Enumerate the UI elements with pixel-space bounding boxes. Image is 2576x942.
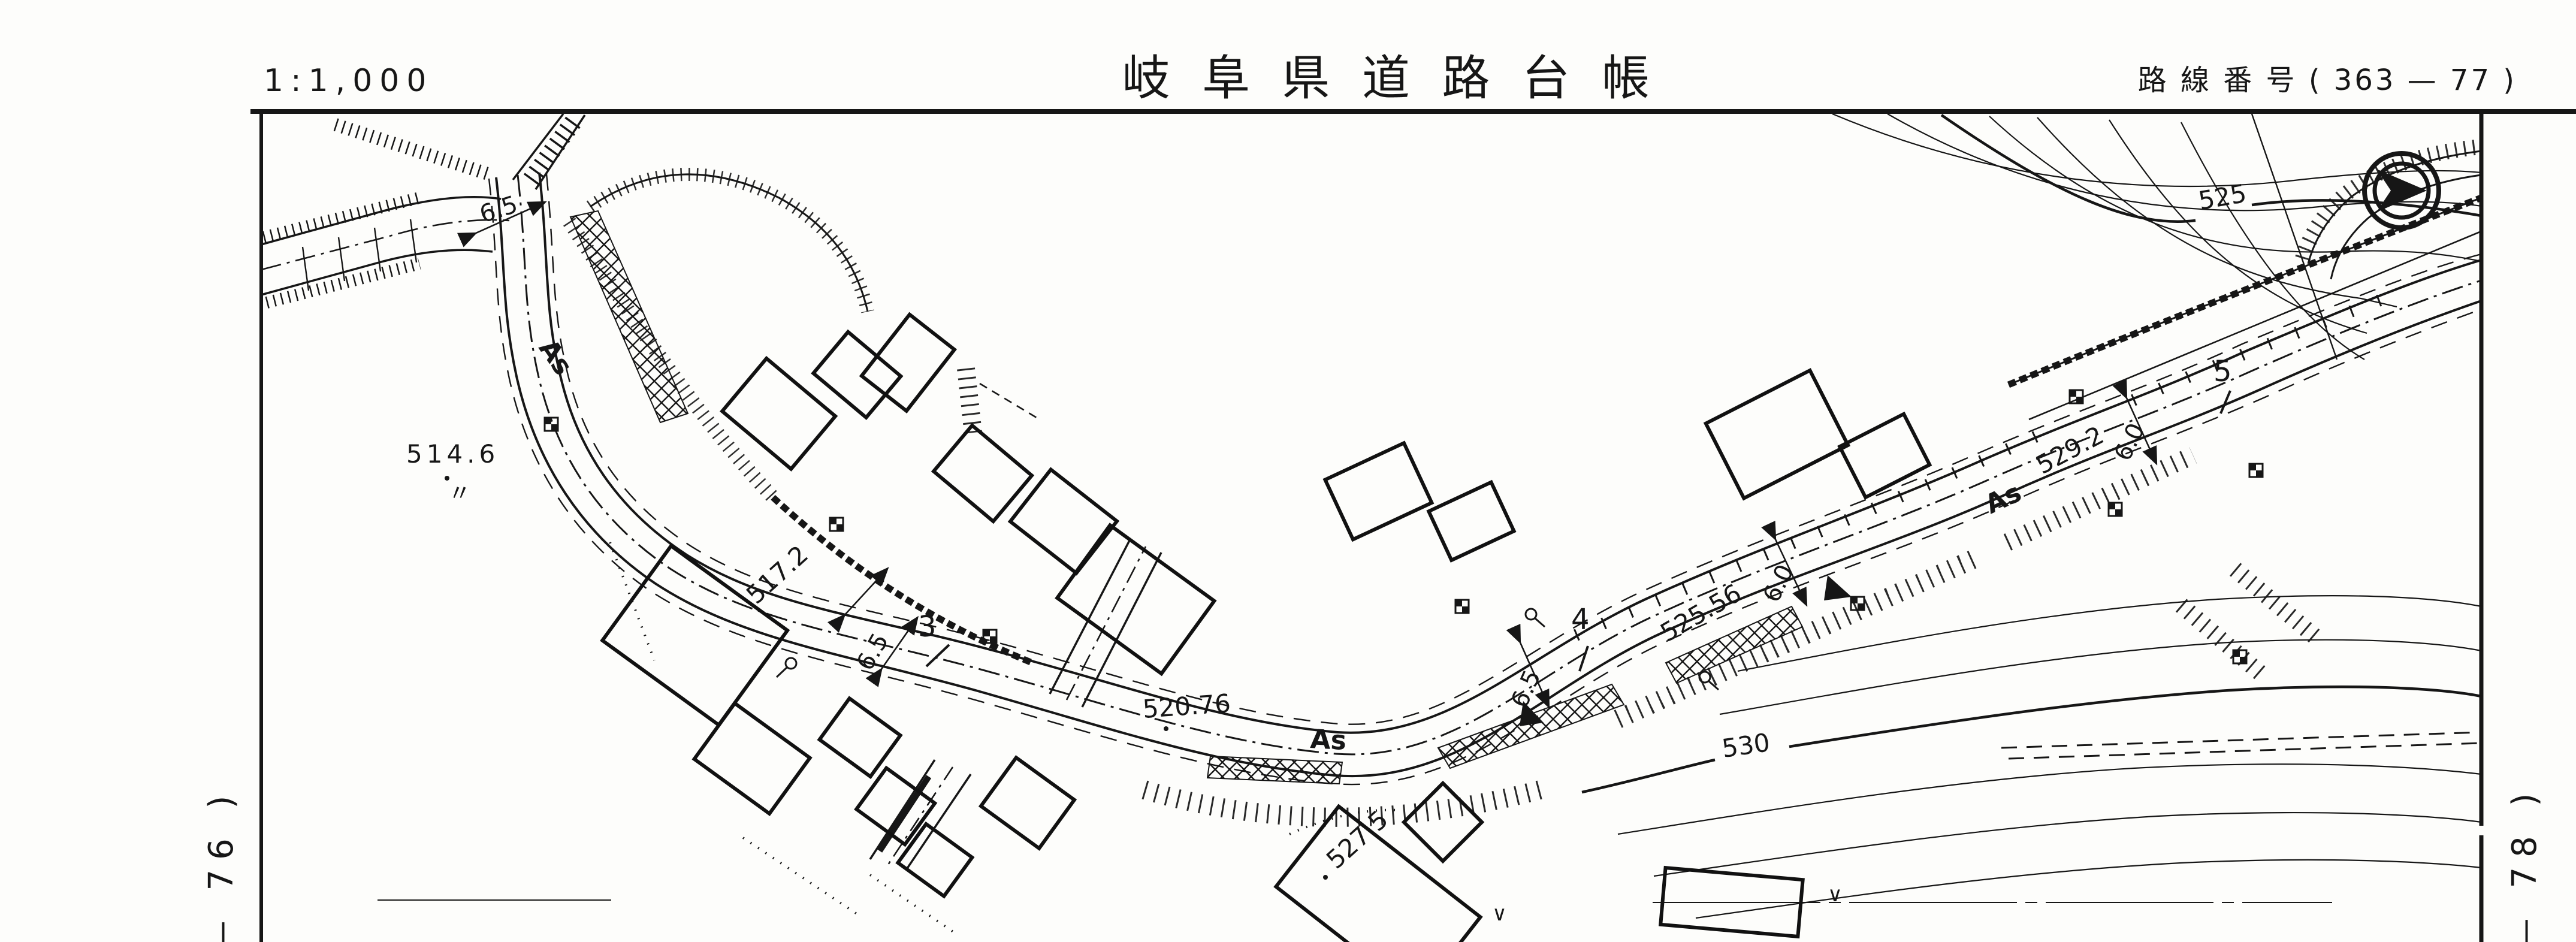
benchmark-icon <box>545 418 558 431</box>
spot-elevation-label: 514.6 <box>406 439 499 469</box>
left-approach-road <box>261 125 509 303</box>
lower-branch-road <box>870 760 971 870</box>
sheet-ref-left: — 76 ) <box>202 786 241 942</box>
terrace-lines-lower <box>378 596 2481 918</box>
station-number: 3 <box>918 610 937 644</box>
pavement-label: As <box>1980 477 2026 520</box>
station-number: 4 <box>1571 603 1590 636</box>
road-width-label: 6.0 <box>1758 560 1799 606</box>
contour-label: 530 <box>1720 727 1772 763</box>
benchmark-icon <box>2109 503 2122 516</box>
benchmark-icon <box>1851 597 1864 610</box>
pavement-label: As <box>533 334 578 381</box>
pavement-label: As <box>1309 724 1347 756</box>
north-arrow-icon <box>2364 153 2439 228</box>
slope-hatch <box>966 369 2319 817</box>
ditto-mark: 〃 <box>448 480 471 506</box>
benchmark-icon <box>2249 464 2263 477</box>
route-number: 路 線 番 号 ( 363 — 77 ) <box>2138 64 2517 97</box>
sheet-ref-right: — 78 ) <box>2505 784 2544 942</box>
shrub-mark: ∨ <box>1828 883 1843 907</box>
culvert-mark <box>1824 575 1852 600</box>
steep-branch-road <box>513 114 585 189</box>
station-number: 5 <box>2213 355 2232 388</box>
benchmark-icon <box>830 518 843 531</box>
spot-elevation-label: 529.2 <box>2031 420 2109 480</box>
dotted-boundaries <box>610 384 1400 935</box>
benchmark-icon <box>2233 650 2246 663</box>
benchmark-icon <box>1455 600 1469 613</box>
buildings <box>602 315 1929 942</box>
width-arrows <box>475 203 2156 706</box>
page-title: 岐 阜 県 道 路 台 帳 <box>1122 50 1659 106</box>
spot-elevation-label: 517.2 <box>741 540 814 610</box>
header: 1:1,000 岐 阜 県 道 路 台 帳 路 線 番 号 ( 363 — 77… <box>264 50 2517 106</box>
map-scale: 1:1,000 <box>264 63 433 99</box>
spot-elevation-label: 520.76 <box>1141 689 1231 724</box>
shrub-mark: ∨ <box>1492 902 1507 926</box>
road-ledger-sheet: 1:1,000 岐 阜 県 道 路 台 帳 路 線 番 号 ( 363 — 77… <box>0 0 2576 942</box>
